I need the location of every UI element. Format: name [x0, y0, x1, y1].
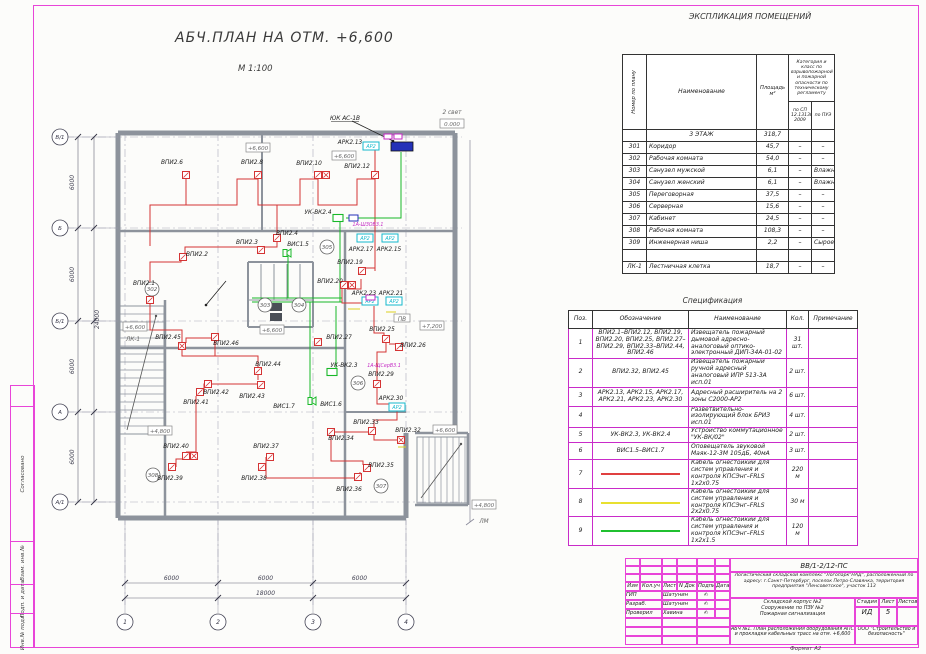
title-block: ИзмКол.учЛистN ДокПодписьДатаГИПШатунин✍…: [625, 558, 918, 645]
tb-cell: [715, 609, 730, 618]
device-label: 2 свет: [442, 110, 462, 116]
sheets-label: Листов: [897, 598, 918, 607]
room-number: 304: [294, 303, 305, 309]
tb-cell: [640, 558, 662, 566]
device-label: ВПИ2.34: [328, 436, 354, 442]
cable-red: [150, 179, 186, 246]
tb-cell: [697, 558, 715, 566]
dim-total: 18000: [256, 590, 275, 597]
sign-role: ГИП: [625, 591, 662, 600]
col-num: Номер по плану: [623, 55, 647, 130]
axis-label: 4: [404, 619, 408, 626]
stage-value: ИД: [855, 607, 879, 626]
leader-line: [206, 281, 226, 305]
tb-cell: [625, 558, 640, 566]
table-row: 9Кабель огнестойкий для систем управлени…: [569, 517, 858, 546]
device-label: АРК2.17: [348, 247, 374, 253]
col-name: Наименование: [647, 55, 757, 130]
device-label: ВПИ2.42: [203, 390, 229, 396]
tb-cell: [625, 618, 662, 627]
tb-cell: [715, 558, 730, 566]
explication-table: Номер по плану Наименование Площадь м² К…: [622, 54, 835, 274]
col-area: Площадь м²: [757, 55, 789, 130]
sheet-title: АБЧ №1. План расположения оборудования А…: [730, 626, 855, 645]
axis-label: Б: [58, 226, 62, 232]
device-label: ВПИ2.3: [236, 240, 258, 246]
sign-header: Лист: [662, 582, 677, 591]
tb-cell: [677, 574, 697, 582]
device-label: УК-ВК2.3: [330, 363, 357, 369]
device-label: ВПИ2.26: [400, 343, 426, 349]
device-label: ВПИ2.35: [368, 463, 394, 469]
cable-swatch: [601, 473, 680, 475]
cable-swatch: [601, 502, 680, 504]
device-label: АРК2.30: [378, 396, 404, 402]
table-row: ЛК-1Лестничная клетка18,7––: [623, 262, 835, 274]
tb-cell: [715, 566, 730, 574]
tb-cell: [677, 558, 697, 566]
cable-red: [186, 338, 211, 343]
device-label: ВПИ2.19: [337, 260, 363, 266]
axis-label: А/1: [54, 500, 64, 506]
tb-cell: [697, 574, 715, 582]
room-number: 305: [322, 245, 333, 251]
signature: ✍: [697, 591, 715, 600]
expander-label: АР2: [365, 144, 376, 150]
device-label: УК-ВК2.4: [304, 210, 331, 216]
axis-label: Б/1: [55, 319, 64, 325]
cable-green: [346, 152, 401, 218]
sign-name: Шатунин: [662, 591, 697, 600]
room-number: 306: [353, 381, 364, 387]
device-label: ВПИ2.40: [163, 444, 189, 450]
sign-header: N Док: [677, 582, 697, 591]
tb-cell: [697, 636, 730, 645]
table-row: 304Санузел женский6,1–Влажн.: [623, 178, 835, 190]
specification-table: Поз.ОбозначениеНаименованиеКол.Примечани…: [568, 310, 858, 546]
explication-title: ЭКСПЛИКАЦИЯ ПОМЕЩЕНИЙ: [620, 12, 880, 21]
table-row: 6ВИС1.5–ВИС1.7Оповещатель звуковой Маяк-…: [569, 443, 858, 460]
device-label: 1А-ЩСерВ3.1: [367, 363, 401, 369]
device-label: ЛК-1: [125, 337, 140, 343]
device-label: ЛМ: [478, 519, 488, 525]
tb-cell: [662, 636, 697, 645]
sound-annunciator: [283, 250, 287, 257]
leader-arrow: [205, 304, 208, 307]
device-label: ВПИ2.25: [369, 327, 395, 333]
sheet-label: Лист: [879, 598, 897, 607]
cable-red: [374, 435, 397, 440]
device-label: ВПИ2.41: [183, 400, 209, 406]
tb-cell: [625, 636, 662, 645]
ukvk-device: [333, 215, 343, 222]
specification-title: Спецификация: [568, 296, 857, 305]
device-label: ПВ: [398, 317, 406, 323]
tb-cell: [697, 618, 730, 627]
sign-name: Хавина: [662, 609, 697, 618]
tb-cell: [625, 566, 640, 574]
device-label: ВПИ2.20: [317, 279, 343, 285]
tb-cell: [640, 566, 662, 574]
table-row: 307Кабинет24,5––: [623, 214, 835, 226]
table-row: 305Переговорная37,5––: [623, 190, 835, 202]
table-row: 5УК-ВК2.3, УК-ВК2.4Устройство коммутацио…: [569, 428, 858, 443]
tb-cell: [715, 591, 730, 600]
expander-label: АР2: [391, 405, 402, 411]
dim-value: 6000: [69, 175, 76, 190]
axis-label: 3: [311, 619, 315, 626]
signature: ✍: [697, 600, 715, 609]
project-name: Логистический складской комплекс "Логопа…: [730, 572, 918, 598]
signature: ✍: [697, 609, 715, 618]
device-label: 1А-ШЗОВ3.1: [353, 222, 384, 228]
room-number: 307: [376, 484, 387, 490]
expander-label: АР2: [384, 236, 395, 242]
col-pue: по ПУЭ: [812, 102, 835, 130]
level-value: +4,800: [474, 503, 495, 509]
device-label: ВПИ2.2: [186, 252, 208, 258]
tb-cell: [697, 566, 715, 574]
level-value: +6,600: [262, 328, 283, 334]
ukvk-device: [327, 369, 337, 376]
level-value: +4,800: [150, 429, 171, 435]
cable-red: [266, 461, 356, 478]
table-row: 309Инженерная ниша2,2–Сырое: [623, 238, 835, 250]
device-label: ВПИ2.36: [336, 487, 362, 493]
table-row: 302Рабочая комната54,0––: [623, 154, 835, 166]
axis-label: В/1: [55, 135, 64, 141]
device-label: ВПИ2.45: [155, 335, 181, 341]
table-row: 306Серверная15,6––: [623, 202, 835, 214]
dim-value: 6000: [69, 267, 76, 282]
expander-label: АР2: [359, 236, 370, 242]
stair-arrow: [127, 316, 156, 430]
device-label: ВПИ2.27: [326, 335, 352, 341]
company-name: ООО "Строительство и безопасность": [855, 626, 918, 645]
device-label: ВПИ2.4: [276, 231, 298, 237]
tb-cell: [677, 566, 697, 574]
object-name: Складской корпус №2 Сооружение по ПЗУ №2…: [730, 598, 855, 626]
sheets-count: [897, 607, 918, 626]
col-sp: по СП 12.13130-2009: [789, 102, 812, 130]
device-label: ВИС1.7: [273, 404, 295, 410]
device-label: ЮК АС-1В: [330, 116, 360, 122]
sign-name: Шатунин: [662, 600, 697, 609]
table-row: 3 ЭТАЖ318,7: [623, 130, 835, 142]
device-label: ВПИ2.37: [253, 444, 279, 450]
dim-value: 6000: [69, 359, 76, 374]
stair-arrow-head: [460, 443, 462, 445]
level-value: +6,600: [435, 428, 456, 434]
level-value: 0.000: [444, 122, 460, 128]
level-value: +6,600: [248, 146, 269, 152]
aux-box: [394, 134, 402, 139]
device-label: ВПИ2.10: [296, 161, 322, 167]
tb-cell: [662, 574, 677, 582]
axis-label: 1: [123, 619, 127, 626]
device-label: ВПИ2.46: [213, 341, 239, 347]
device-label: ВПИ2.44: [255, 362, 281, 368]
device-label: ВПИ2.29: [368, 372, 394, 378]
table-row: [623, 250, 835, 262]
aux-box: [349, 215, 358, 221]
room-number: 302: [147, 287, 158, 293]
device-label: ВПИ2.6: [161, 160, 183, 166]
device-label: АРК2.23: [351, 291, 377, 297]
table-row: 2ВПИ2.32, ВПИ2.45Извещатель пожарный руч…: [569, 359, 858, 388]
sign-header: Дата: [715, 582, 730, 591]
sign-role: Разраб.: [625, 600, 662, 609]
tb-cell: [662, 618, 697, 627]
tb-cell: [640, 574, 662, 582]
room-number: 303: [260, 303, 271, 309]
level-value: +6,600: [334, 154, 355, 160]
tb-cell: [625, 627, 662, 636]
tb-cell: [662, 566, 677, 574]
device-label: ВПИ2.39: [157, 476, 183, 482]
sign-role: Проверил: [625, 609, 662, 618]
device-label: ВИС1.5: [287, 242, 309, 248]
stage-label: Стадия: [855, 598, 879, 607]
device-label: ВПИ2.38: [241, 476, 267, 482]
aux-box: [384, 134, 392, 139]
device-label: ВПИ2.43: [239, 394, 265, 400]
cable-red: [182, 350, 215, 356]
device-label: ВПИ2.8: [241, 160, 263, 166]
control-panel-device: [391, 142, 413, 151]
sign-header: Подпись: [697, 582, 715, 591]
device-label: ВИС1.6: [320, 402, 342, 408]
device-label: ВПИ2.1: [133, 281, 155, 287]
table-row: 301Коридор45,7––: [623, 142, 835, 154]
speaker-horn: [312, 397, 316, 405]
axis-label: 2: [216, 619, 220, 626]
table-row: 4Разветвительно-изолирующий блок БРИЗ ис…: [569, 406, 858, 428]
tb-cell: [625, 574, 640, 582]
cable-swatch: [601, 530, 680, 532]
tb-cell: [715, 600, 730, 609]
dim-value: 6000: [258, 575, 273, 582]
table-row: 308Рабочая комната108,3––: [623, 226, 835, 238]
device-label: АРК2.13: [337, 140, 363, 146]
table-row: 3АРК2.13, АРК2.15, АРК2.17, АРК2.21, АРК…: [569, 387, 858, 406]
device-label: ВПИ2.32: [395, 428, 421, 434]
dim-value: 6000: [69, 449, 76, 464]
sheet-number: 5: [879, 607, 897, 626]
shaft: [270, 313, 282, 321]
axis-label: А: [57, 410, 62, 416]
sign-header: Изм: [625, 582, 640, 591]
speaker-horn: [287, 249, 291, 257]
level-value: +6,600: [125, 325, 146, 331]
level-value: +7,200: [422, 324, 443, 330]
dim-total: 24000: [94, 310, 101, 329]
tb-cell: [715, 574, 730, 582]
table-row: 8Кабель огнестойкий для систем управлени…: [569, 488, 858, 517]
device-label: АРК2.21: [378, 291, 403, 297]
stair-arrow-head: [155, 315, 157, 317]
tb-cell: [662, 558, 677, 566]
document-code: ВВ/1-2/12-ПС: [730, 558, 918, 572]
table-row: 303Санузел мужской6,1–Влажн.: [623, 166, 835, 178]
dim-value: 6000: [164, 575, 179, 582]
table-row: 1ВПИ2.1–ВПИ2.12, ВПИ2.19, ВПИ2.20, ВПИ2.…: [569, 329, 858, 359]
col-category: Категория и класс по взрывопожарной и по…: [789, 55, 835, 102]
sound-annunciator: [308, 398, 312, 405]
device-label: ВПИ2.12: [344, 164, 370, 170]
device-label: АРК2.15: [376, 247, 402, 253]
table-row: 7Кабель огнестойкий для систем управлени…: [569, 460, 858, 489]
tb-cell: [697, 627, 730, 636]
expander-label: АР2: [388, 299, 399, 305]
dim-value: 6000: [352, 575, 367, 582]
tb-cell: [662, 627, 697, 636]
device-label: ВПИ2.33: [353, 420, 379, 426]
sign-header: Кол.уч: [640, 582, 662, 591]
cable-red: [176, 459, 186, 467]
drawing-sheet: { "sheet": { "title": "АБЧ.ПЛАН НА ОТМ. …: [0, 0, 926, 654]
